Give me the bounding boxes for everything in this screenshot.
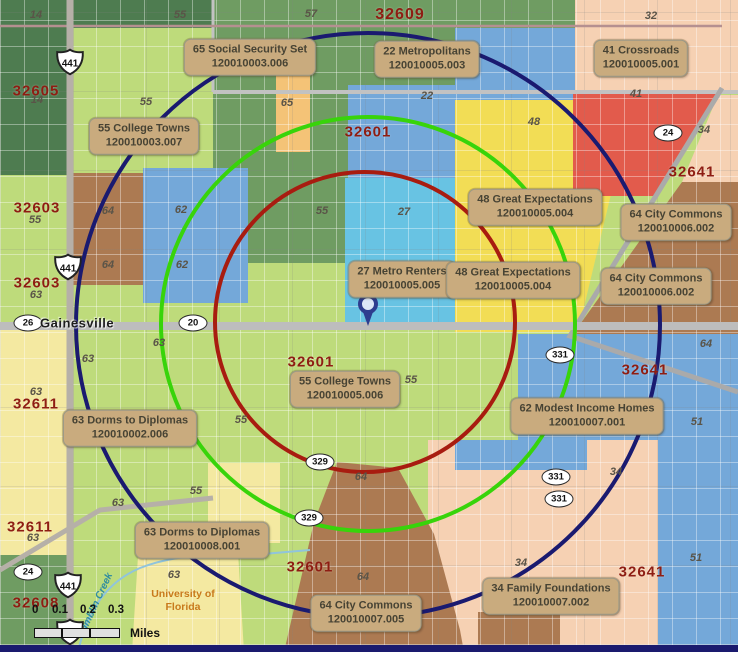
segment-callout: 27 Metro Renters120010005.005 (348, 261, 455, 298)
zip-code-label: 32605 (13, 83, 60, 100)
scale-bar: 0 0.1 0.2 0.3 Miles (30, 604, 180, 644)
scale-bar-rule (34, 628, 120, 638)
tapestry-number: 55 (316, 205, 328, 217)
segment-name: 64 City Commons (320, 599, 413, 613)
tapestry-number: 48 (528, 116, 540, 128)
us-route-shield: 441 (53, 254, 83, 281)
segment-name: 64 City Commons (610, 272, 703, 286)
tapestry-number: 64 (355, 471, 367, 483)
tapestry-number: 63 (153, 337, 165, 349)
tapestry-number: 63 (112, 497, 124, 509)
tapestry-number: 64 (102, 259, 114, 271)
zip-code-label: 32611 (7, 519, 53, 536)
segment-callout: 48 Great Expectations120010005.004 (446, 262, 580, 299)
segment-code: 120010005.003 (383, 59, 470, 73)
zip-code-label: 32641 (619, 564, 666, 581)
segment-name: 34 Family Foundations (491, 582, 610, 596)
segment-code: 120010007.002 (491, 596, 610, 610)
tapestry-number: 65 (281, 97, 293, 109)
tapestry-number: 64 (357, 571, 369, 583)
state-route-shield: 24 (14, 564, 43, 581)
segment-callout: 22 Metropolitans120010005.003 (374, 41, 479, 78)
state-route-shield: 26 (14, 315, 43, 332)
segment-code: 120010007.005 (320, 613, 413, 627)
zip-code-label: 32601 (345, 124, 392, 141)
tapestry-number: 64 (700, 338, 712, 350)
segment-code: 120010005.004 (455, 280, 571, 294)
tapestry-number: 51 (690, 552, 702, 564)
tapestry-number: 57 (305, 8, 317, 20)
city-label: Gainesville (40, 316, 114, 331)
tapestry-number: 41 (630, 88, 642, 100)
state-route-shield: 20 (179, 315, 208, 332)
zip-code-label: 32601 (288, 354, 335, 371)
svg-text:441: 441 (60, 581, 77, 592)
tapestry-number: 55 (405, 374, 417, 386)
segment-name: 63 Dorms to Diplomas (72, 414, 188, 428)
tapestry-number: 62 (176, 259, 188, 271)
segment-callout: 65 Social Security Set120010003.006 (184, 39, 316, 76)
tapestry-number: 55 (235, 414, 247, 426)
segment-callout: 63 Dorms to Diplomas120010008.001 (135, 522, 269, 559)
segment-name: 55 College Towns (299, 375, 391, 389)
segment-code: 120010005.005 (357, 279, 446, 293)
zip-code-label: 32609 (375, 6, 425, 24)
tapestry-number: 55 (140, 96, 152, 108)
state-route-shield: 331 (542, 469, 571, 486)
state-route-shield: 329 (295, 510, 324, 527)
segment-callout: 63 Dorms to Diplomas120010002.006 (63, 410, 197, 447)
segment-name: 62 Modest Income Homes (519, 402, 654, 416)
us-route-shield: 441 (55, 49, 85, 76)
scale-tick-1: 0.1 (52, 604, 68, 616)
tapestry-number: 63 (168, 569, 180, 581)
segment-callout: 55 College Towns120010005.006 (290, 371, 400, 408)
segment-code: 120010006.002 (630, 222, 723, 236)
segment-name: 63 Dorms to Diplomas (144, 526, 260, 540)
segment-callout: 64 City Commons120010006.002 (621, 204, 732, 241)
tapestry-number: 34 (515, 557, 527, 569)
tapestry-number: 63 (82, 353, 94, 365)
segment-callout: 64 City Commons120010007.005 (311, 595, 422, 632)
segment-callout: 62 Modest Income Homes120010007.001 (510, 398, 663, 435)
segment-name: 65 Social Security Set (193, 43, 307, 57)
svg-text:441: 441 (60, 263, 77, 274)
tapestry-number: 62 (175, 204, 187, 216)
segment-name: 64 City Commons (630, 208, 723, 222)
state-route-shield: 331 (546, 347, 575, 364)
state-route-shield: 331 (545, 491, 574, 508)
tapestry-number: 32 (645, 10, 657, 22)
tapestry-number: 51 (691, 416, 703, 428)
tapestry-number: 14 (30, 9, 42, 21)
segment-code: 120010003.007 (98, 136, 190, 150)
segment-name: 27 Metro Renters (357, 265, 446, 279)
map-canvas[interactable]: 1455573214556522414834646255275564626363… (0, 0, 738, 652)
segment-code: 120010005.006 (299, 389, 391, 403)
tapestry-number: 34 (610, 466, 622, 478)
us-route-shield: 441 (53, 572, 83, 599)
segment-name: 55 College Towns (98, 122, 190, 136)
location-pin-icon (360, 296, 376, 312)
tapestry-number: 55 (174, 9, 186, 21)
tapestry-number: 22 (421, 90, 433, 102)
zip-code-label: 32611 (13, 396, 59, 413)
scale-tick-0: 0 (32, 604, 38, 616)
bottom-frame-bar (0, 645, 738, 652)
segment-name: 41 Crossroads (603, 44, 679, 58)
segment-name: 22 Metropolitans (383, 45, 470, 59)
segment-code: 120010002.006 (72, 428, 188, 442)
svg-text:441: 441 (62, 58, 79, 69)
segment-code: 120010006.002 (610, 286, 703, 300)
zip-code-label: 32601 (287, 559, 334, 576)
segment-code: 120010007.001 (519, 416, 654, 430)
state-route-shield: 24 (654, 125, 683, 142)
segment-code: 120010005.001 (603, 58, 679, 72)
tapestry-number: 55 (190, 485, 202, 497)
tapestry-number: 27 (398, 206, 410, 218)
segment-name: 48 Great Expectations (455, 266, 571, 280)
tapestry-number: 34 (698, 124, 710, 136)
university-label-line1: University of (151, 588, 215, 601)
scale-unit-label: Miles (130, 626, 160, 640)
scale-tick-3: 0.3 (108, 604, 124, 616)
zip-code-label: 32641 (622, 362, 669, 379)
segment-callout: 41 Crossroads120010005.001 (594, 40, 688, 77)
zip-code-label: 32603 (14, 200, 61, 217)
segment-name: 48 Great Expectations (477, 193, 593, 207)
state-route-shield: 329 (306, 454, 335, 471)
segment-callout: 34 Family Foundations120010007.002 (482, 578, 619, 615)
segment-code: 120010005.004 (477, 207, 593, 221)
tapestry-number: 64 (102, 205, 114, 217)
segment-code: 120010003.006 (193, 57, 307, 71)
segment-callout: 64 City Commons120010006.002 (601, 268, 712, 305)
scale-tick-2: 0.2 (80, 604, 96, 616)
segment-callout: 55 College Towns120010003.007 (89, 118, 199, 155)
segment-callout: 48 Great Expectations120010005.004 (468, 189, 602, 226)
segment-code: 120010008.001 (144, 540, 260, 554)
zip-code-label: 32641 (669, 164, 716, 181)
